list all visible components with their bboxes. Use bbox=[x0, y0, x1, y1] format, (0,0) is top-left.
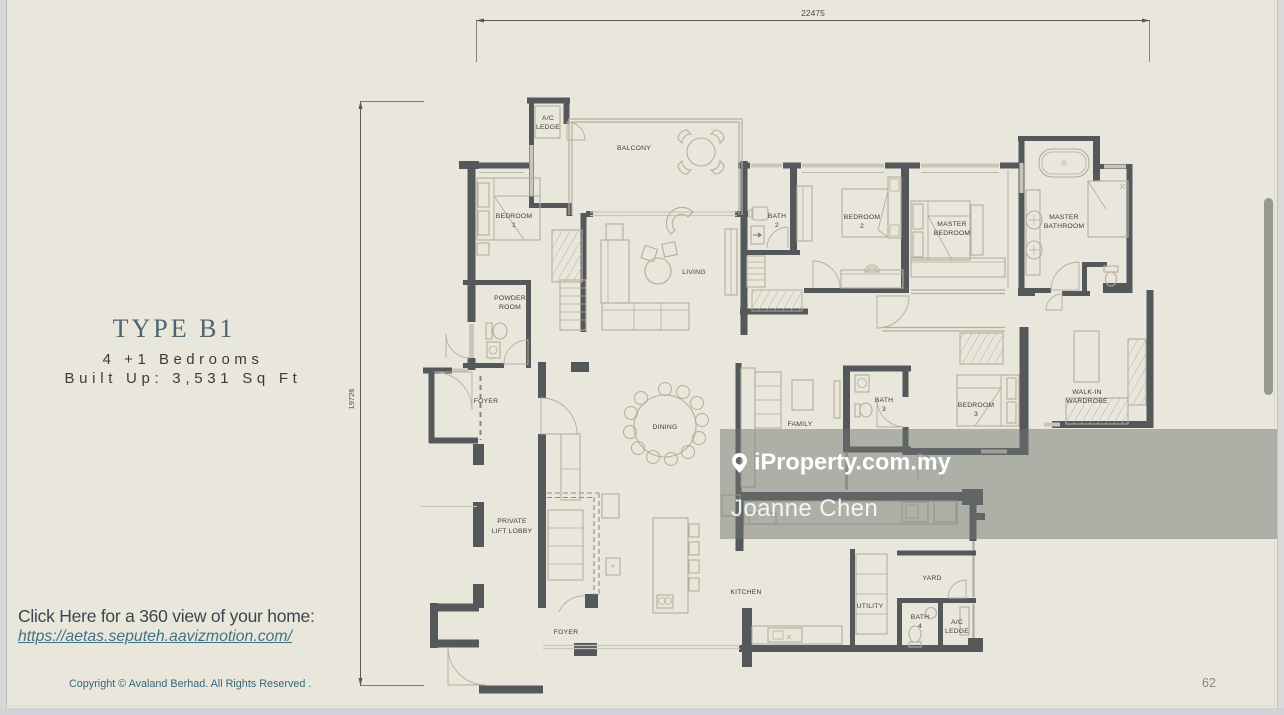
svg-text:LEDGE: LEDGE bbox=[945, 628, 969, 635]
svg-text:POWDER: POWDER bbox=[494, 295, 526, 302]
svg-text:WALK-IN: WALK-IN bbox=[1072, 389, 1101, 396]
svg-text:ROOM: ROOM bbox=[499, 304, 521, 311]
svg-text:BATH: BATH bbox=[875, 397, 893, 404]
svg-text:1: 1 bbox=[512, 222, 516, 229]
svg-text:A/C: A/C bbox=[542, 115, 554, 122]
svg-text:BEDROOM: BEDROOM bbox=[958, 402, 995, 409]
svg-text:LIVING: LIVING bbox=[682, 269, 706, 276]
svg-text:A/C: A/C bbox=[951, 619, 963, 626]
svg-text:BATHROOM: BATHROOM bbox=[1044, 223, 1085, 230]
svg-text:DINING: DINING bbox=[653, 424, 678, 431]
svg-text:WARDROBE: WARDROBE bbox=[1066, 398, 1108, 405]
svg-text:LEDGE: LEDGE bbox=[536, 124, 560, 131]
svg-text:4: 4 bbox=[918, 623, 922, 630]
svg-text:2: 2 bbox=[775, 222, 779, 229]
svg-text:UTILITY: UTILITY bbox=[857, 603, 884, 610]
svg-text:BATH: BATH bbox=[911, 614, 929, 621]
svg-text:BEDROOM: BEDROOM bbox=[844, 214, 881, 221]
svg-text:BEDROOM: BEDROOM bbox=[934, 230, 971, 237]
svg-text:BALCONY: BALCONY bbox=[617, 145, 651, 152]
svg-text:FAMILY: FAMILY bbox=[788, 421, 813, 428]
svg-text:22475: 22475 bbox=[801, 8, 825, 18]
svg-text:FOYER: FOYER bbox=[474, 398, 498, 405]
svg-text:19726: 19726 bbox=[347, 389, 356, 410]
svg-text:FOYER: FOYER bbox=[554, 629, 578, 636]
svg-text:BATH: BATH bbox=[768, 213, 786, 220]
svg-text:2: 2 bbox=[860, 223, 864, 230]
svg-text:MASTER: MASTER bbox=[1049, 214, 1079, 221]
svg-text:PRIVATE: PRIVATE bbox=[497, 518, 527, 525]
svg-text:3: 3 bbox=[974, 411, 978, 418]
svg-text:KITCHEN: KITCHEN bbox=[730, 589, 761, 596]
svg-text:YARD: YARD bbox=[922, 575, 941, 582]
svg-text:MASTER: MASTER bbox=[937, 221, 967, 228]
svg-text:LIFT LOBBY: LIFT LOBBY bbox=[492, 528, 533, 535]
svg-text:3: 3 bbox=[882, 406, 886, 413]
svg-text:BEDROOM: BEDROOM bbox=[496, 213, 533, 220]
svg-text:iProperty.com.my: iProperty.com.my bbox=[754, 452, 951, 475]
